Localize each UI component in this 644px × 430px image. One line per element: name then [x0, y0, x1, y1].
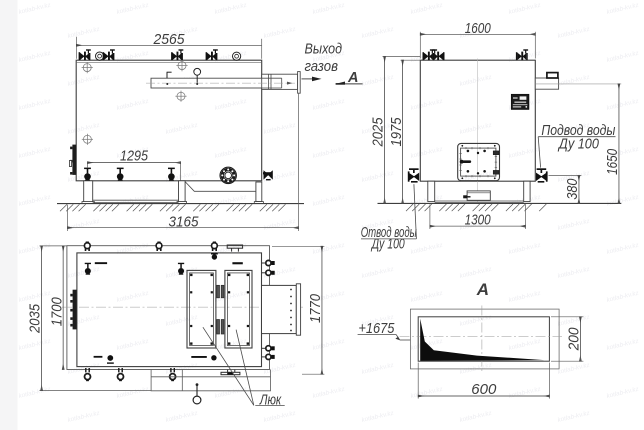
- svg-text:1600: 1600: [465, 20, 492, 37]
- svg-text:1650: 1650: [604, 148, 621, 175]
- svg-text:2035: 2035: [26, 303, 43, 333]
- svg-text:Выход: Выход: [305, 40, 343, 57]
- svg-text:1295: 1295: [120, 147, 149, 164]
- svg-text:200: 200: [566, 327, 583, 352]
- svg-text:1300: 1300: [465, 212, 492, 229]
- svg-text:1770: 1770: [307, 293, 324, 323]
- svg-text:380: 380: [564, 178, 581, 200]
- svg-text:2025: 2025: [370, 117, 387, 147]
- svg-text:3165: 3165: [169, 213, 200, 230]
- svg-text:газов: газов: [304, 58, 338, 75]
- svg-text:2565: 2565: [153, 31, 186, 48]
- svg-text:1700: 1700: [48, 297, 65, 327]
- svg-text:А: А: [476, 280, 489, 299]
- svg-text:Ду 100: Ду 100: [557, 135, 599, 152]
- svg-text:1975: 1975: [388, 117, 405, 147]
- svg-text:Ду 100: Ду 100: [370, 236, 405, 253]
- svg-text:600: 600: [471, 381, 497, 398]
